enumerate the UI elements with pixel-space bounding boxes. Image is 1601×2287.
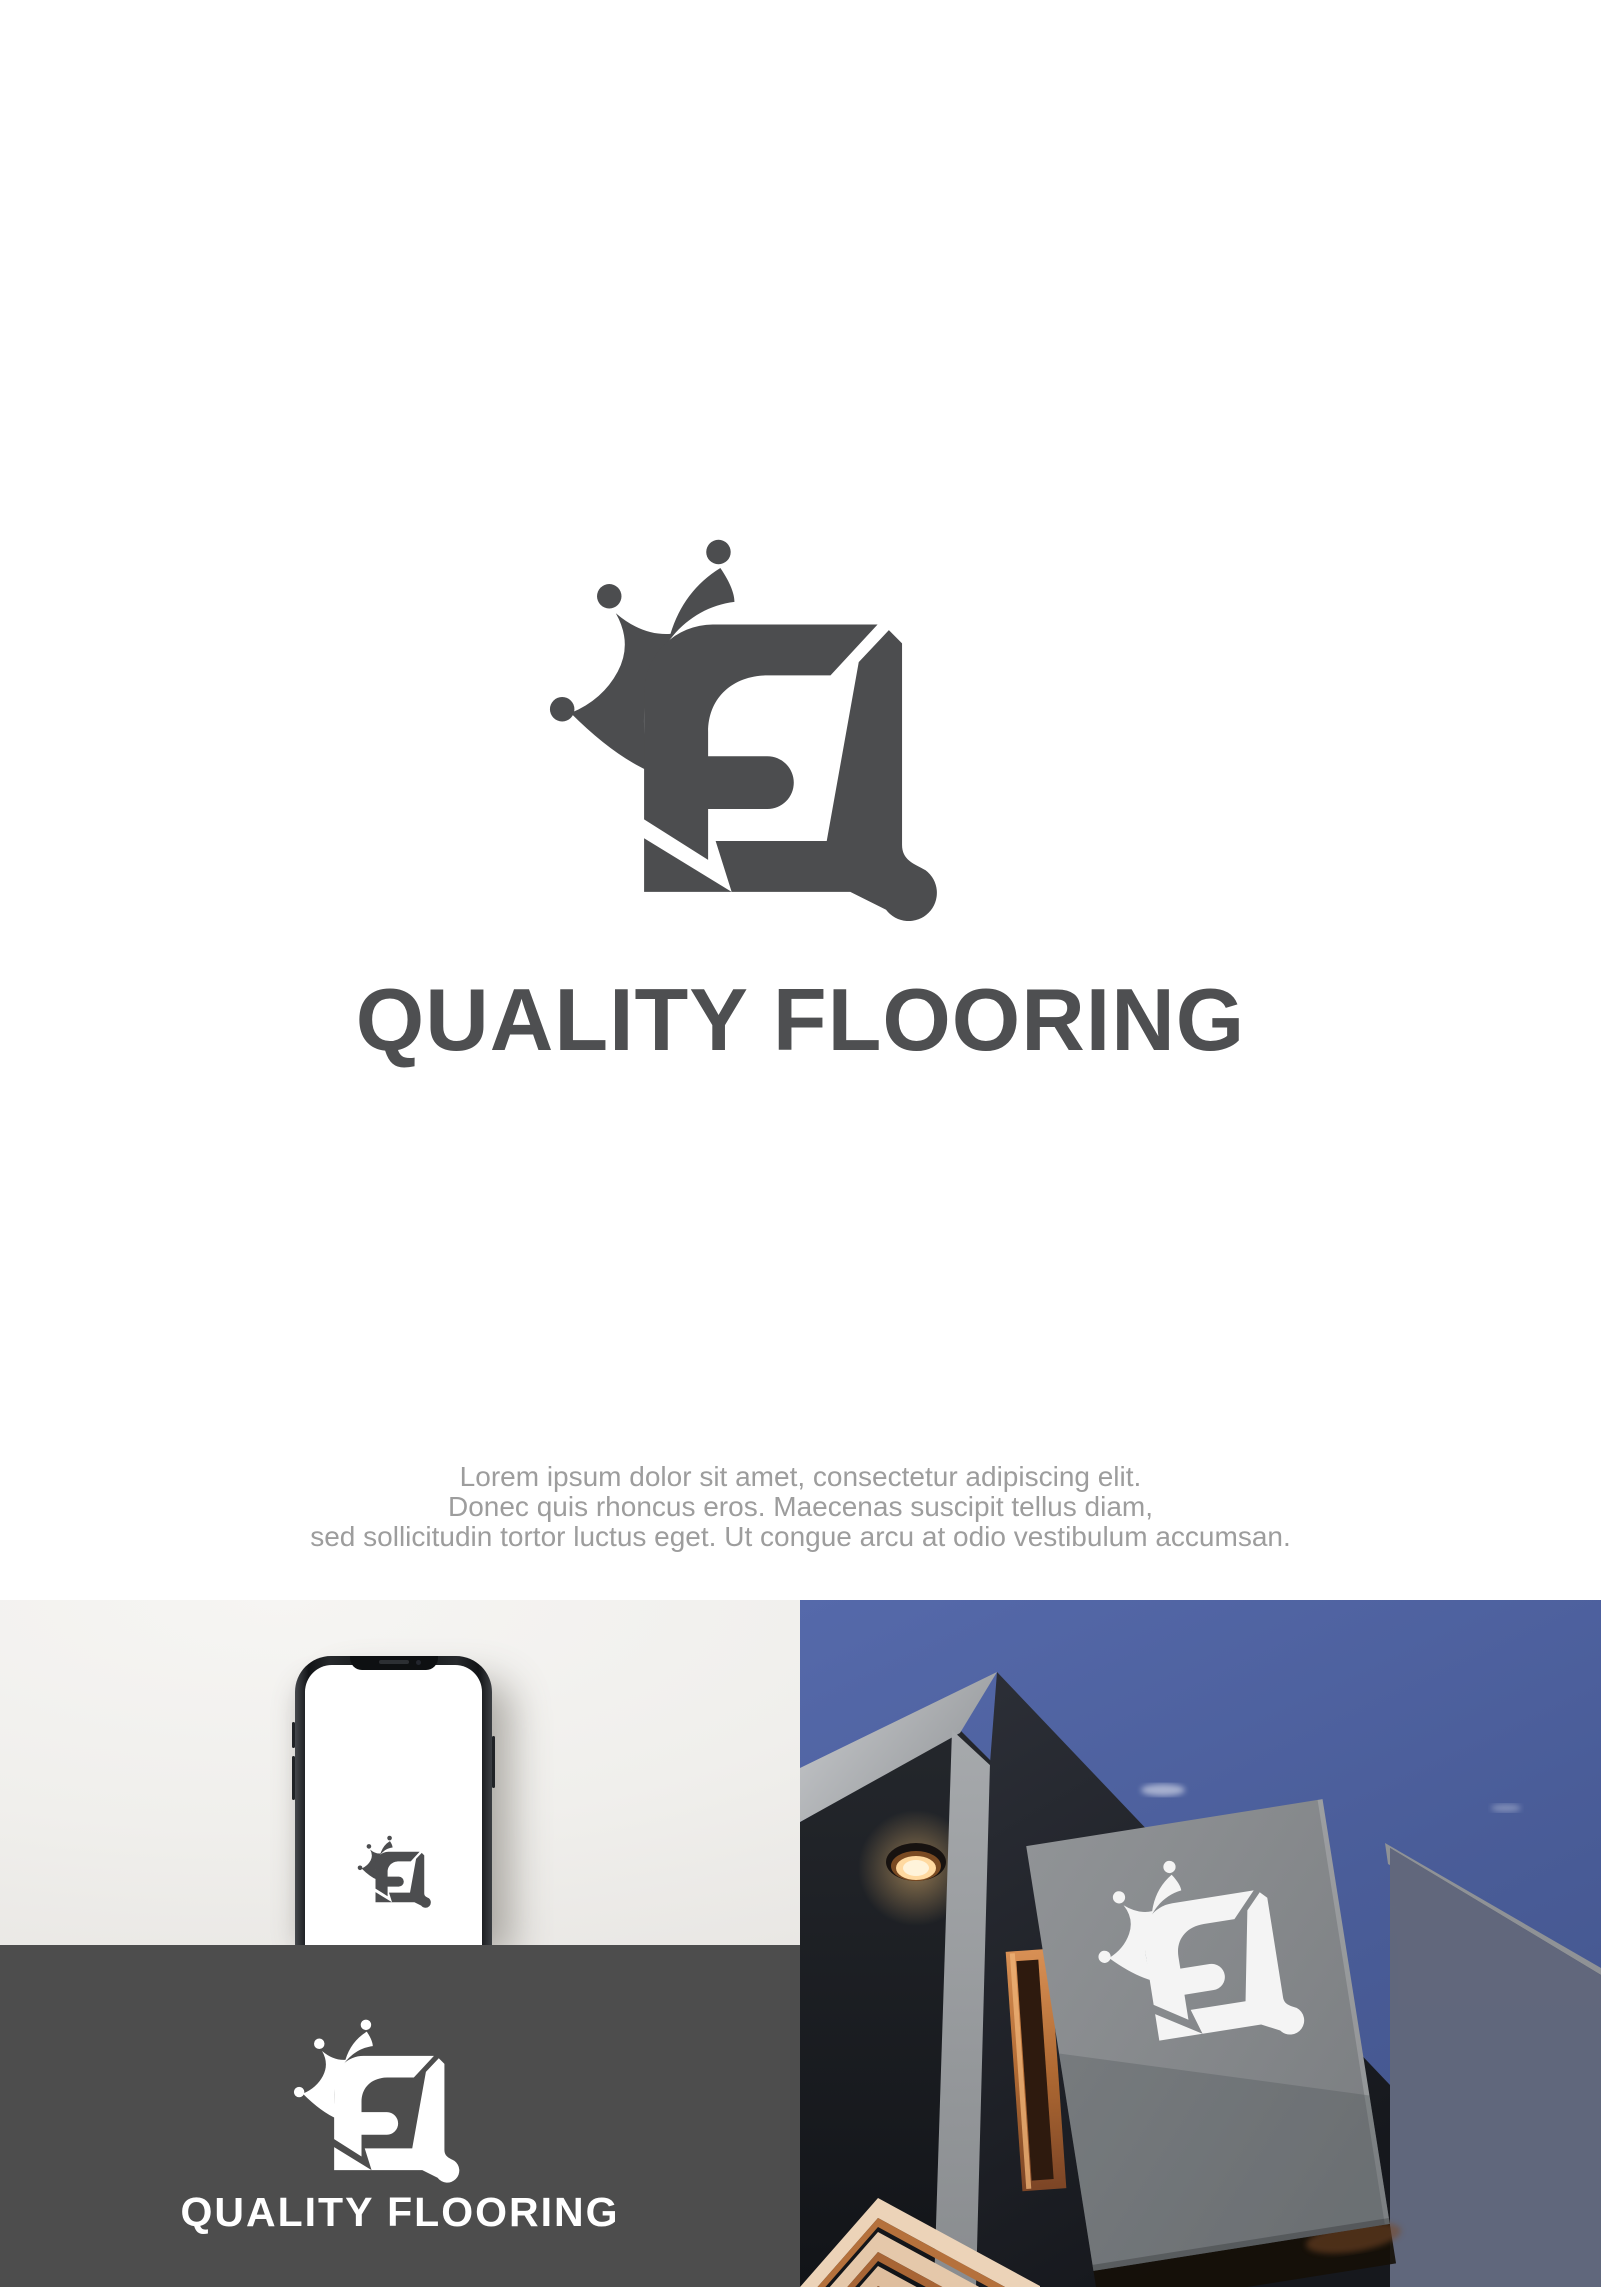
wall-mockup-panel: [0, 1600, 800, 1945]
storefront-photo-panel: [800, 1600, 1601, 2287]
tagline: Lorem ipsum dolor sit amet, consectetur …: [0, 1462, 1601, 1552]
phone-notch: [350, 1656, 438, 1670]
dark-brand-panel: QUALITY FLOORING: [0, 1945, 800, 2287]
phone-mockup: [295, 1656, 492, 1945]
page-title: QUALITY FLOORING: [0, 976, 1601, 1064]
phone-screen-logo-icon: [357, 1835, 431, 1908]
phone-camera-icon: [416, 1660, 421, 1665]
tagline-line-3: sed sollicitudin tortor luctus eget. Ut …: [0, 1522, 1601, 1552]
phone-volume-up-button: [292, 1722, 295, 1748]
tagline-line-2: Donec quis rhoncus eros. Maecenas suscip…: [0, 1492, 1601, 1522]
storefront-scene: [800, 1600, 1601, 2287]
cloud-icon: [1491, 1804, 1521, 1812]
phone-power-button: [492, 1736, 495, 1788]
phone-speaker-icon: [379, 1660, 409, 1664]
brand-logo-fq-monogram-icon: [546, 536, 938, 922]
cloud-icon: [1141, 1784, 1185, 1796]
dark-panel-logo-icon: [292, 2018, 460, 2183]
phone-volume-down-button: [292, 1756, 295, 1800]
phone-screen: [305, 1665, 482, 1945]
presentation-page: QUALITY FLOORING Lorem ipsum dolor sit a…: [0, 0, 1601, 2287]
tagline-line-1: Lorem ipsum dolor sit amet, consectetur …: [0, 1462, 1601, 1492]
dark-panel-wordmark: QUALITY FLOORING: [0, 2189, 800, 2236]
